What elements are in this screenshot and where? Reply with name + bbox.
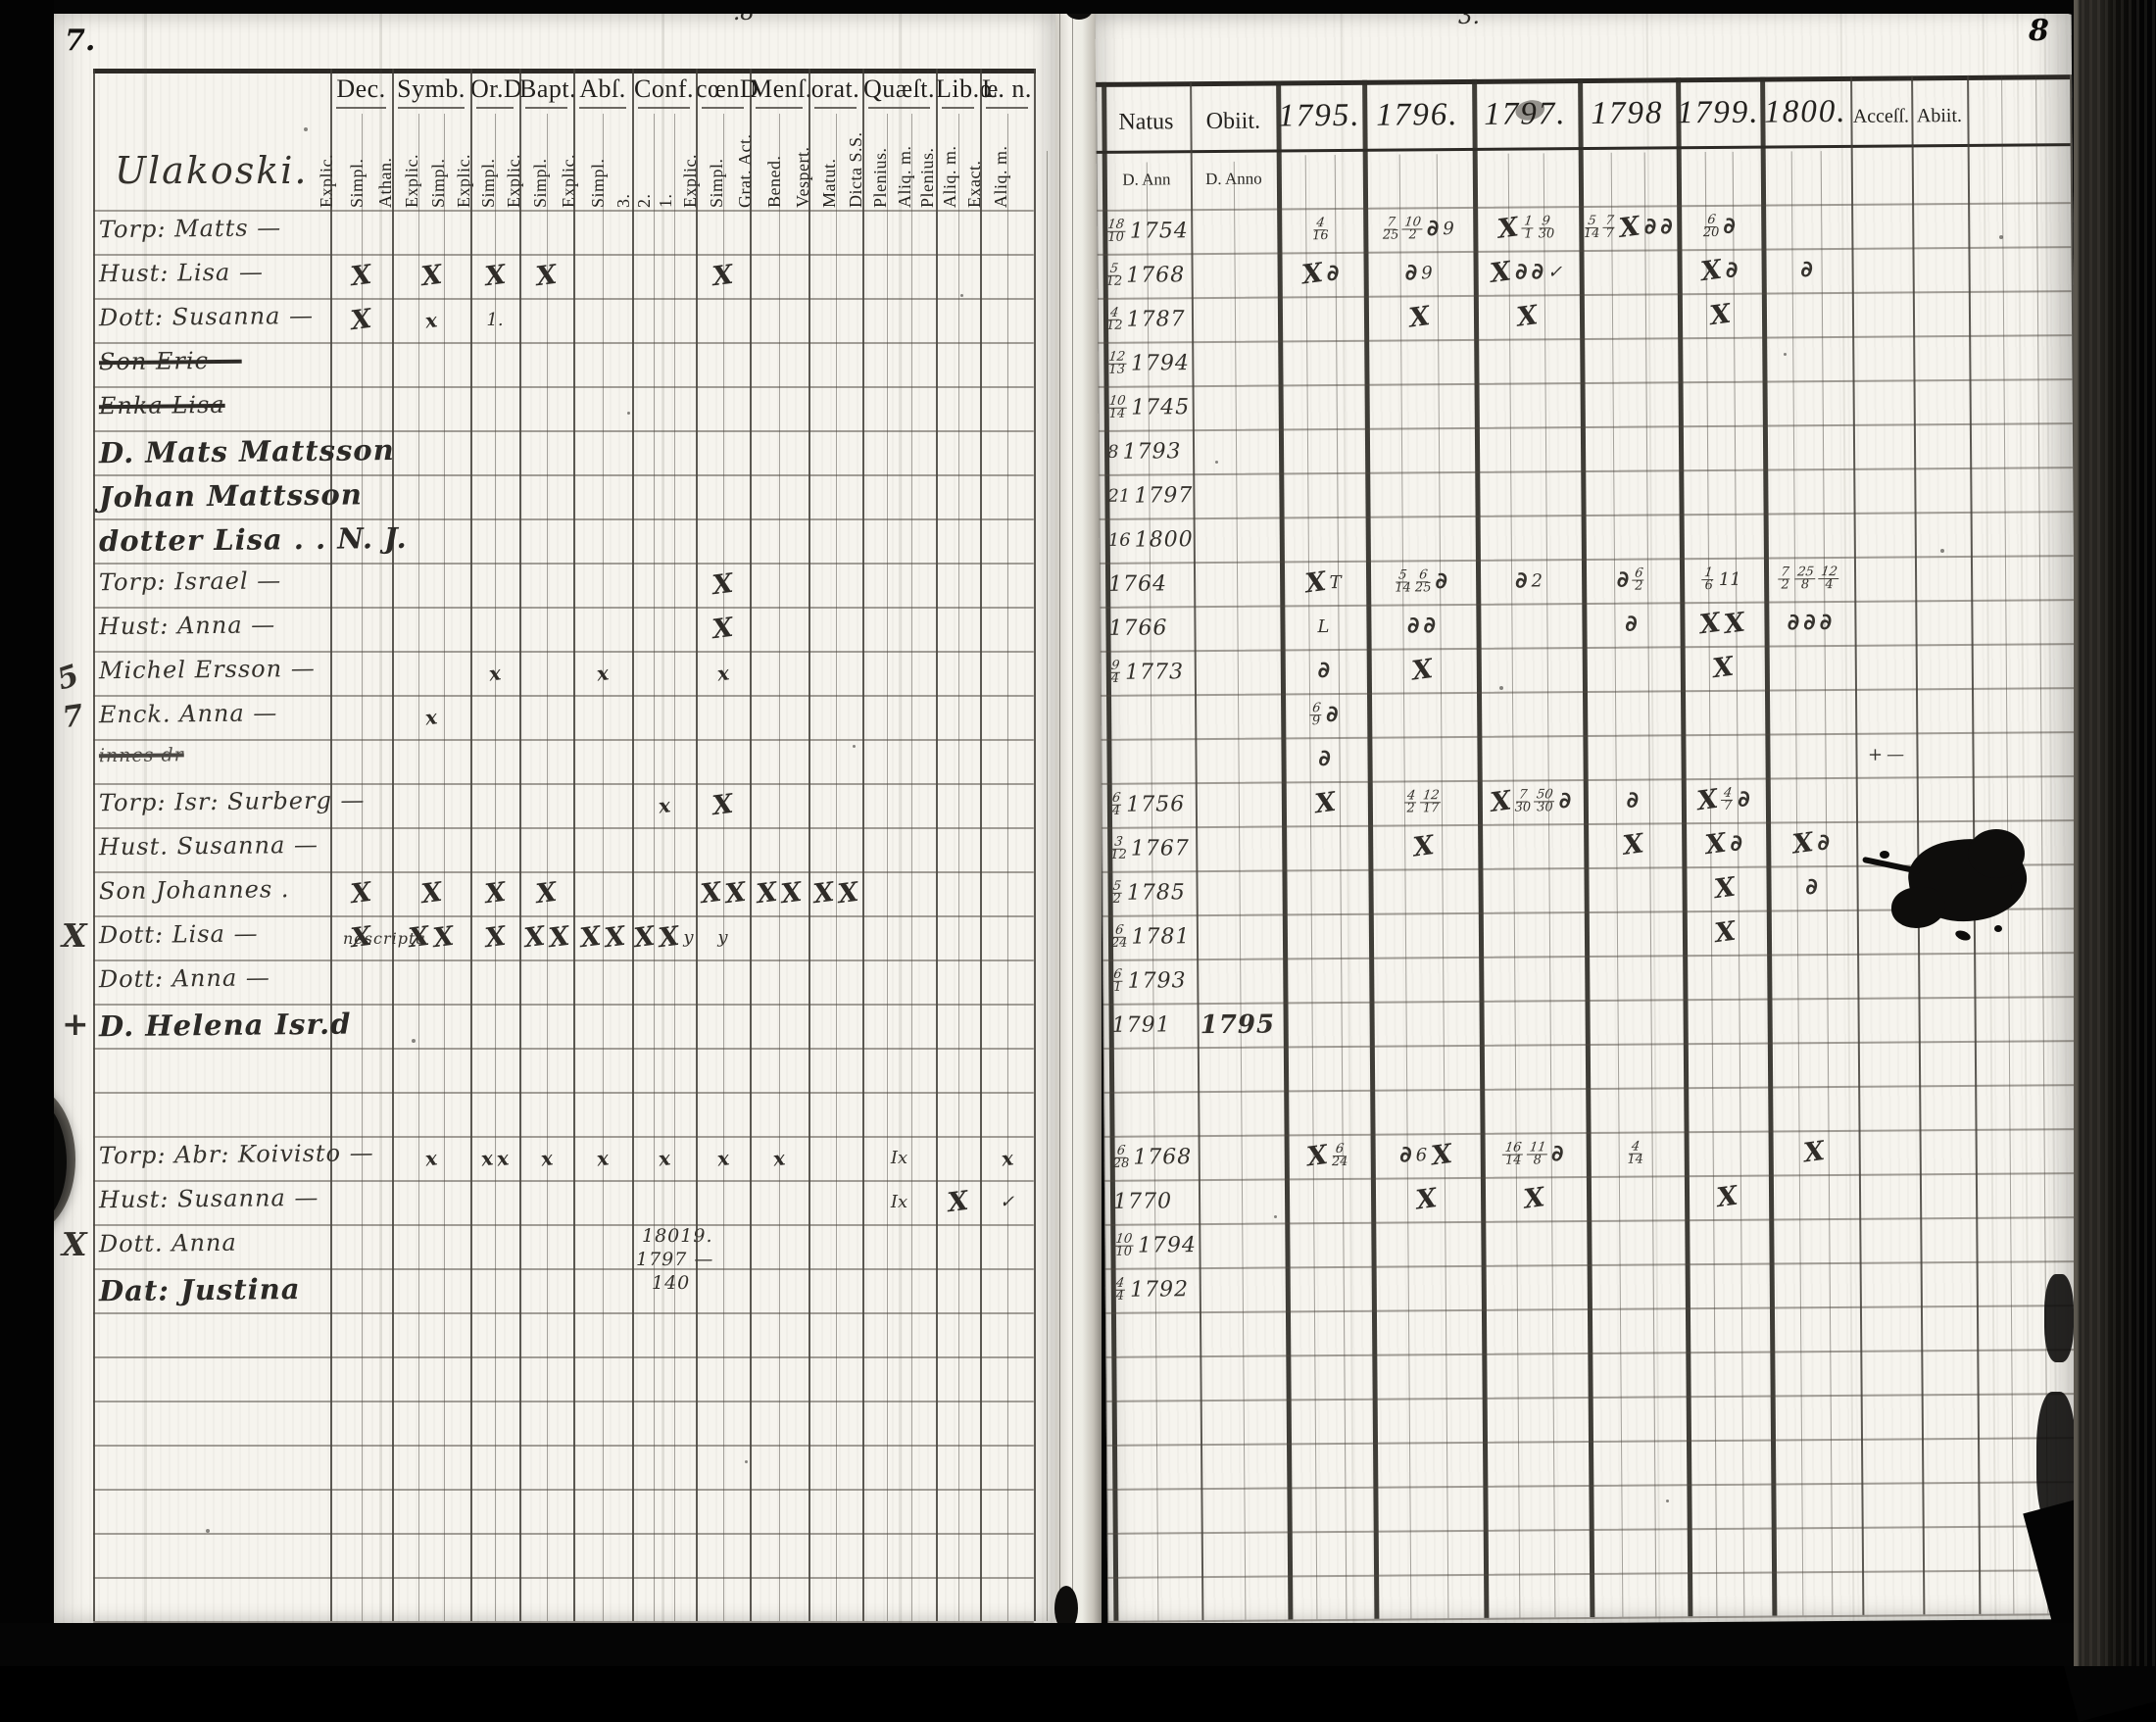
communion-d-mark: ∂	[1803, 612, 1816, 634]
natus-date-fraction: 624	[1111, 925, 1128, 950]
communion-d-mark: ∂	[1515, 569, 1528, 592]
natus-date-fraction: 512	[1106, 264, 1123, 288]
column-sub-label: Bened.	[764, 156, 785, 208]
communion-mark: 9	[1421, 265, 1433, 282]
grid-vline	[958, 114, 959, 1621]
communion-mark: 9	[1443, 221, 1454, 238]
communion-numerator: 12	[1420, 790, 1442, 803]
communion-d-mark: ∂	[1660, 216, 1673, 238]
scan-speck	[1940, 549, 1944, 553]
communion-d-mark: ∂	[1617, 569, 1630, 592]
mark-cell-coend: x	[696, 1136, 750, 1180]
natus-denominator: 1	[1113, 982, 1121, 994]
attendance-x-mark: X	[946, 1188, 969, 1216]
natus-year: 1767	[1131, 838, 1190, 860]
communion-denominator: 2	[1781, 579, 1788, 591]
natus-denominator: 12	[1106, 276, 1123, 288]
communion-numerator: 1	[1702, 567, 1716, 580]
mark-cell-coend: X	[696, 254, 750, 298]
attendance-x-mark: X	[710, 262, 734, 290]
grid-hline	[93, 210, 1034, 212]
communion-cell-y95: ∂	[1281, 737, 1367, 782]
communion-mark: 2	[1532, 572, 1543, 590]
communion-x-mark: X	[1711, 654, 1735, 682]
communion-date-fraction: 62	[1633, 568, 1644, 593]
natus-date-fraction: 44	[1114, 1278, 1126, 1303]
ink-splatter	[1880, 851, 1889, 859]
mark-cell-abs: x	[573, 651, 632, 695]
communion-d-mark: ∂	[1805, 876, 1818, 899]
communion-d-mark: ∂	[1788, 612, 1800, 634]
attendance-x-mark: X	[483, 923, 507, 952]
communion-cell-y97: X	[1474, 294, 1580, 339]
grid-vline	[808, 69, 810, 1621]
mark-cell-ln: ✓	[980, 1180, 1034, 1224]
attendance-x-mark: X	[547, 923, 570, 952]
natus-denominator: 10	[1107, 232, 1124, 244]
communion-cell-y98: ∂	[1582, 602, 1680, 647]
row-name: D. Helena Isr.d	[99, 1008, 329, 1047]
communion-cell-y95: L	[1280, 605, 1366, 650]
communion-cell-y95: ∂	[1281, 649, 1367, 694]
grid-hline	[93, 1268, 1034, 1270]
grid-hline	[93, 1356, 1034, 1358]
mark-cell-symb: X	[392, 254, 470, 298]
communion-cell-y98: ∂	[1584, 778, 1682, 823]
communion-denominator: 8	[1534, 1155, 1542, 1166]
grid-vline	[1007, 114, 1008, 1621]
natus-mark: 16	[1108, 531, 1131, 549]
communion-x-mark: X	[1699, 257, 1723, 285]
communion-cell-y97: ∂2	[1476, 559, 1582, 604]
communion-d-mark: ∂	[1515, 261, 1528, 283]
margin-mark: +	[62, 1005, 90, 1043]
mark-cell-symb: x	[392, 298, 470, 342]
natus-denominator: 4	[1116, 1291, 1124, 1303]
scan-speck	[206, 1529, 210, 1533]
communion-denominator: 25	[1383, 230, 1399, 242]
column-header-dec: Dec.	[330, 74, 392, 104]
natus-date-fraction: 1014	[1107, 396, 1128, 420]
column-sub-label: Explic.	[402, 154, 422, 208]
communion-x-mark: X	[1430, 1141, 1453, 1169]
communion-x-mark: X	[1713, 918, 1737, 947]
scan-speck	[1999, 235, 2003, 239]
column-header-orat: orat.	[808, 74, 862, 104]
grid-hline	[93, 518, 1034, 520]
communion-denominator: 20	[1703, 227, 1720, 239]
communion-numerator: 4	[1629, 1142, 1642, 1155]
communion-x-mark: X	[1708, 301, 1732, 329]
grid-hline	[93, 563, 1034, 565]
communion-d-mark: ∂	[1625, 614, 1638, 636]
communion-x-mark: X	[1489, 258, 1512, 286]
book-gutter	[1055, 0, 1102, 1627]
scanned-book-spread: Ulakoski. 18019. 1797 — 140 Dec.Explic.S…	[0, 0, 2156, 1666]
natus-date-fraction: 412	[1106, 308, 1123, 332]
row-name: Johan Mattsson	[99, 478, 329, 517]
natus-numerator: 5	[1107, 264, 1121, 276]
row-name: Hust. Susanna —	[99, 831, 329, 870]
row-name: Torp: Matts —	[99, 214, 329, 253]
communion-x-mark: X	[1515, 302, 1539, 330]
communion-cell-y96: ∂9	[1363, 251, 1473, 296]
attendance-x-mark: X	[603, 923, 626, 952]
communion-denominator: 1	[1524, 228, 1532, 240]
communion-x-mark: X	[1704, 830, 1728, 859]
attendance-x-mark: X	[534, 879, 558, 908]
scan-speck	[1666, 1500, 1669, 1502]
row-name: Son Johannes .	[99, 875, 329, 914]
communion-d-mark: ∂	[1326, 704, 1339, 726]
row-name: Torp: Isr: Surberg —	[99, 787, 329, 826]
natus-year: 1787	[1126, 309, 1185, 330]
communion-cell-y00: X∂	[1766, 821, 1856, 866]
natus-denominator: 14	[1109, 409, 1126, 420]
attendance-x-mark: X	[522, 923, 546, 952]
grid-hline	[93, 1577, 1034, 1579]
column-sub-label: Matut.	[819, 159, 840, 209]
communion-d-mark: ∂	[1738, 789, 1750, 812]
natus-cell: 10141745	[1104, 385, 1193, 430]
communion-date-fraction: 77	[1603, 216, 1615, 240]
attendance-x-mark: X	[419, 879, 443, 908]
attendance-x-mark: x	[715, 1148, 729, 1168]
communion-d-mark: ∂	[1644, 216, 1657, 238]
communion-cell-y96: X	[1364, 295, 1474, 340]
communion-numerator: 6	[1704, 215, 1718, 227]
grid-hline	[93, 959, 1034, 961]
communion-x-mark: X	[1698, 610, 1722, 638]
natus-mark: 8	[1107, 443, 1119, 461]
communion-x-mark: X	[1723, 610, 1746, 638]
attendance-x-mark: X	[836, 879, 859, 908]
communion-x-mark: X	[1300, 260, 1324, 288]
column-sub-label: 2.	[634, 194, 655, 209]
attendance-x-mark: x	[496, 1148, 510, 1168]
grid-hline	[93, 739, 1034, 741]
access-mark: —	[1886, 746, 1904, 763]
communion-x-mark: X	[1802, 1138, 1826, 1166]
scan-speck	[853, 745, 856, 748]
attendance-x-mark: X	[349, 923, 372, 952]
communion-x-mark: X	[1407, 303, 1431, 331]
natus-numerator: 6	[1110, 969, 1124, 982]
mark-cell-mens: XX	[750, 871, 808, 915]
row-name: Hust: Susanna —	[99, 1184, 329, 1223]
attendance-x-mark: x	[424, 1148, 438, 1168]
scan-edge-top	[0, 0, 2156, 14]
grid-hline	[93, 827, 1034, 829]
communion-mark: T	[1330, 573, 1342, 591]
natus-year: 1800	[1135, 529, 1194, 551]
communion-numerator: 6	[1416, 569, 1430, 582]
communion-cell-y99: X∂	[1682, 822, 1766, 867]
communion-cell-y96: ∂6X	[1371, 1133, 1481, 1178]
natus-year: 1768	[1133, 1147, 1192, 1168]
column-sub-label: 1.	[656, 194, 676, 209]
natus-numerator: 3	[1111, 837, 1125, 850]
scan-streak	[144, 14, 147, 1623]
mark-cell-liboe: X	[936, 1180, 980, 1224]
natus-denominator: 12	[1110, 850, 1127, 861]
communion-date-fraction: 514	[1395, 569, 1411, 594]
grid-hline	[398, 107, 465, 109]
attendance-x-mark: X	[483, 879, 507, 908]
column-sub-label: 3.	[613, 194, 634, 209]
natus-year: 1745	[1131, 397, 1190, 418]
year-header-1800: 1800.	[1760, 94, 1850, 136]
mark-cell-bapt: X	[519, 871, 573, 915]
fold-line	[1072, 0, 1073, 1627]
communion-d-mark: ∂	[1730, 833, 1742, 856]
attendance-x-mark: X	[419, 262, 443, 290]
column-sub-label: Simpl.	[588, 158, 609, 208]
column-header-abs: Abſ.	[573, 74, 632, 104]
communion-cell-y99: 620∂	[1677, 205, 1761, 250]
natus-year: 1781	[1131, 926, 1190, 948]
grid-vline	[573, 69, 575, 1621]
communion-d-mark: ∂	[1800, 259, 1813, 281]
attendance-x-mark: x	[488, 663, 502, 683]
scan-streak	[661, 14, 664, 1623]
attendance-x-mark: x	[715, 663, 729, 683]
attendance-x-mark: X	[483, 262, 507, 290]
natus-year: 1793	[1122, 441, 1181, 463]
communion-denominator: 25	[1415, 582, 1432, 594]
margin-mark: X	[62, 916, 88, 955]
natus-numerator: 6	[1112, 925, 1126, 938]
communion-cell-y98: 414	[1587, 1131, 1685, 1176]
communion-denominator: 2	[1408, 229, 1416, 241]
natus-numerator: 4	[1107, 308, 1121, 320]
attendance-x-mark: X	[710, 570, 734, 599]
communion-cell-y95: XT	[1280, 561, 1366, 606]
communion-cell-y96: 421217	[1368, 780, 1478, 825]
communion-date-fraction: 16	[1702, 567, 1714, 592]
fold-line	[1059, 0, 1060, 1627]
grid-vline	[980, 69, 982, 1621]
communion-numerator: 7	[1603, 216, 1617, 228]
attendance-x-mark: X	[349, 306, 372, 334]
mark-cell-ord: X	[470, 915, 519, 959]
grid-hline	[476, 107, 514, 109]
communion-d-mark: ∂	[1627, 790, 1640, 812]
communion-mark: ✓	[1547, 264, 1562, 281]
grid-hline	[93, 783, 1034, 785]
communion-d-mark: ∂	[1435, 570, 1447, 593]
grid-hline	[93, 1224, 1034, 1226]
communion-cell-y96: X	[1371, 1177, 1481, 1222]
communion-d-mark: ∂	[1531, 261, 1543, 283]
mark-cell-ord: xx	[470, 1136, 519, 1180]
attendance-x-mark: X	[431, 923, 455, 952]
natus-numerator: 4	[1113, 1278, 1127, 1291]
abiit-header: Abiit.	[1911, 105, 1967, 132]
communion-x-mark: X	[1496, 214, 1520, 242]
communion-numerator: 6	[1632, 568, 1645, 581]
natus-year: 1756	[1126, 794, 1185, 815]
access-header: Acceſſ.	[1850, 105, 1911, 132]
column-sub-label: Grat. Act.	[735, 134, 756, 208]
communion-numerator: 4	[1721, 788, 1735, 801]
year-header-1798: 1798	[1578, 95, 1676, 137]
attendance-x-mark: X	[578, 923, 602, 952]
attendance-x-mark: X	[710, 615, 734, 643]
communion-date-fraction: 620	[1703, 215, 1720, 239]
natus-date-fraction: 1010	[1113, 1234, 1134, 1258]
mark-cell-ord: X	[470, 871, 519, 915]
natus-denominator: 4	[1111, 673, 1119, 685]
scan-speck	[627, 412, 630, 415]
communion-numerator: 5	[1585, 216, 1598, 228]
mark-cell-coend: y	[696, 915, 750, 959]
natus-cell: 1764	[1105, 562, 1194, 607]
grid-hline	[93, 298, 1034, 300]
natus-year: 1793	[1128, 970, 1187, 992]
attendance-x-mark: X	[710, 791, 734, 819]
scan-edge-bottom	[0, 1623, 2156, 1666]
communion-cell-y00: X	[1769, 1130, 1859, 1175]
communion-date-fraction: 625	[1415, 569, 1432, 594]
scan-speck	[1499, 686, 1503, 690]
communion-cell-y99: 1611	[1680, 558, 1764, 603]
communion-mark: L	[1317, 618, 1329, 636]
communion-cell-y00: ∂	[1766, 865, 1856, 910]
natus-numerator: 18	[1104, 220, 1126, 232]
communion-denominator: 14	[1395, 582, 1411, 594]
grid-vline	[887, 114, 888, 1621]
mark-cell-symb: x	[392, 695, 470, 739]
communion-d-mark: ∂	[1318, 748, 1331, 770]
communion-denominator: 24	[1332, 1156, 1348, 1168]
natus-date-fraction: 61	[1111, 969, 1123, 994]
natus-year: 1766	[1108, 617, 1167, 639]
scan-edge-right	[2074, 0, 2156, 1666]
natus-cell: 4121787	[1103, 297, 1192, 342]
mark-cell-bapt: x	[519, 1136, 573, 1180]
column-sub-label: Aliq. m.	[991, 145, 1011, 208]
row-name: Enka Lisa	[99, 390, 329, 429]
attendance-x-mark: X	[699, 879, 722, 908]
mark-cell-abs: XX	[573, 915, 632, 959]
grid-vline	[1047, 151, 1048, 1621]
grid-vline	[723, 114, 724, 1621]
column-header-mens: Menſ.	[750, 74, 808, 104]
ink-blot	[1968, 829, 2025, 878]
attendance-mark: y	[717, 929, 727, 947]
attendance-x-mark: x	[772, 1148, 786, 1168]
communion-cell-y98: X	[1584, 822, 1682, 867]
natus-numerator: 6	[1109, 793, 1123, 806]
communion-x-mark: X	[1305, 1142, 1329, 1170]
ink-splatter	[1994, 925, 2002, 932]
grid-hline	[93, 1489, 1034, 1491]
grid-hline	[93, 1533, 1034, 1535]
communion-d-mark: ∂	[1820, 612, 1833, 634]
row-name: dotter Lisa . . N. J.	[99, 522, 329, 562]
row-name: Torp: Israel —	[99, 566, 329, 606]
natus-header: Natus	[1102, 109, 1190, 139]
communion-d-mark: ∂	[1317, 660, 1330, 682]
grid-vline	[779, 114, 780, 1621]
margin-brace-bottom: 7	[61, 699, 87, 736]
grid-hline	[93, 607, 1034, 609]
mark-cell-mens: x	[750, 1136, 808, 1180]
communion-date-fraction: 11	[1522, 216, 1534, 240]
row-name: Dat: Justina	[99, 1272, 329, 1311]
natus-cell: 941773	[1106, 650, 1195, 695]
grid-hline	[942, 107, 974, 109]
column-header-coend: cœnD	[696, 74, 750, 104]
communion-denominator: 16	[1312, 230, 1329, 242]
scan-speck	[960, 294, 963, 297]
communion-d-mark: ∂	[1407, 615, 1420, 637]
scan-speck	[1784, 353, 1787, 356]
communion-cell-y99: X	[1678, 293, 1762, 338]
column-header-liboe: Lib.œ	[936, 74, 980, 104]
attendance-x-mark: X	[633, 923, 657, 952]
column-sub-label: Simpl.	[530, 158, 551, 208]
natus-numerator: 6	[1114, 1146, 1128, 1158]
mark-cell-symb: XX	[392, 915, 470, 959]
grid-hline	[756, 107, 803, 109]
row-name: Dott. Anna	[99, 1228, 329, 1267]
mark-cell-abs: x	[573, 1136, 632, 1180]
natus-year: 1794	[1131, 353, 1190, 374]
natus-denominator: 28	[1113, 1158, 1130, 1170]
natus-date-fraction: 94	[1109, 661, 1121, 685]
year-header-1796: 1796.	[1362, 97, 1472, 139]
communion-date-fraction: 930	[1539, 216, 1555, 240]
communion-x-mark: X	[1414, 1185, 1438, 1213]
attendance-x-mark: X	[811, 879, 835, 908]
natus-cell: 611793	[1108, 959, 1197, 1004]
obiit-cell: 1795	[1197, 1002, 1283, 1047]
natus-year: 1754	[1130, 221, 1189, 242]
communion-cell-y96: X	[1368, 824, 1478, 869]
communion-cell-y97: X∂∂✓	[1473, 250, 1579, 295]
column-header-bapt: Bapt.	[519, 74, 573, 104]
natus-year: 1785	[1127, 882, 1186, 904]
grid-hline	[93, 695, 1034, 697]
communion-numerator: 12	[1818, 566, 1839, 579]
communion-cell-y99: X	[1682, 866, 1766, 911]
row-name: Michel Ersson —	[99, 655, 329, 694]
column-header-symb: Symb.	[392, 74, 470, 104]
attendance-x-mark: x	[424, 707, 438, 727]
communion-denominator: 30	[1537, 802, 1553, 813]
natus-denominator: 2	[1113, 894, 1121, 906]
grid-hline	[525, 107, 567, 109]
natus-cell: 12131794	[1103, 341, 1192, 386]
mark-cell-symb: X	[392, 871, 470, 915]
scan-speck	[1215, 461, 1218, 464]
grid-hline	[93, 342, 1034, 344]
communion-x-mark: X	[1712, 874, 1736, 903]
column-sub-ln: Aliq. m.	[1007, 114, 1035, 210]
natus-date-fraction: 52	[1111, 881, 1123, 906]
communion-numerator: 6	[1333, 1144, 1347, 1156]
mark-cell-ord: 1.	[470, 298, 519, 342]
edge-smudge	[2044, 1274, 2074, 1362]
communion-cell-y96: X	[1367, 648, 1477, 693]
grid-hline	[702, 107, 744, 109]
grid-hline	[93, 1004, 1034, 1006]
natus-cell: 81793	[1104, 429, 1193, 474]
communion-cell-y99: X∂	[1677, 249, 1761, 294]
row-name: Son Eric —	[99, 346, 329, 385]
